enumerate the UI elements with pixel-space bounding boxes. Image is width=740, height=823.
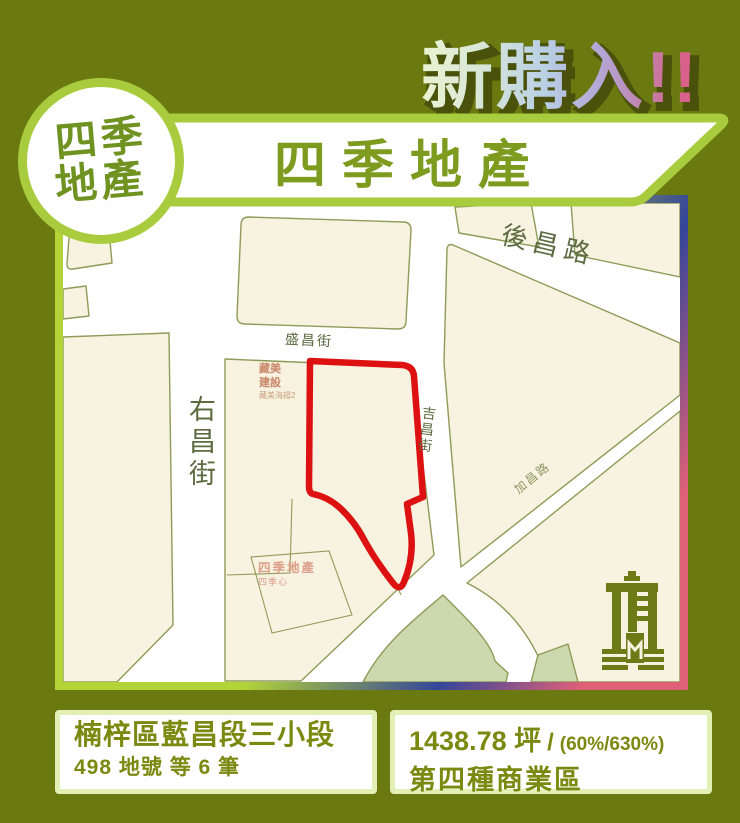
land-area: 1438.78 坪	[409, 719, 541, 758]
street-map: 後昌路 盛昌街 右昌街 吉昌街 加昌路 藏美 建設 藏美海揚2 四季地產 四季心	[63, 203, 680, 682]
poi-builder-sub: 藏美海揚2	[259, 391, 295, 401]
headline-text: 新購入!!	[421, 38, 700, 118]
park-main	[363, 595, 508, 682]
logo-line2: 地產	[53, 157, 148, 208]
poi-agency-sub: 四季心	[258, 577, 316, 588]
coverage-ratio: (60%/630%)	[560, 734, 665, 756]
road-label-youchang: 右昌街	[181, 395, 220, 491]
area-separator: /	[547, 729, 554, 757]
zoning-info-box: 1438.78 坪 / (60%/630%) 第四種商業區	[390, 710, 712, 794]
poi-builder-line2: 建設	[259, 377, 295, 391]
logo-badge: 四季 地產	[18, 78, 184, 244]
land-lot-numbers: 498 地號 等 6 筆	[74, 751, 358, 781]
company-name: 四季地產	[150, 120, 670, 200]
map-frame: 後昌路 盛昌街 右昌街 吉昌街 加昌路 藏美 建設 藏美海揚2 四季地產 四季心	[55, 195, 688, 690]
road-label-shengchang: 盛昌街	[285, 329, 334, 351]
block-west-large	[63, 333, 173, 682]
block-central	[237, 217, 411, 329]
headline-new-purchase: 新購入!! 新購入!!	[421, 18, 700, 123]
land-info-box: 楠梓區藍昌段三小段 498 地號 等 6 筆	[55, 710, 377, 794]
land-section-title: 楠梓區藍昌段三小段	[74, 719, 358, 751]
poi-agency: 四季地產 四季心	[258, 561, 316, 588]
map-canvas	[63, 203, 680, 682]
poi-builder: 藏美 建設 藏美海揚2	[259, 363, 295, 401]
poi-builder-line1: 藏美	[259, 363, 295, 377]
block-west-tiny	[63, 286, 89, 319]
poi-agency-name: 四季地產	[258, 561, 316, 577]
zoning-type: 第四種商業區	[409, 758, 693, 797]
poster: 新購入!! 新購入!! 四季地產 四季 地產	[0, 0, 740, 823]
